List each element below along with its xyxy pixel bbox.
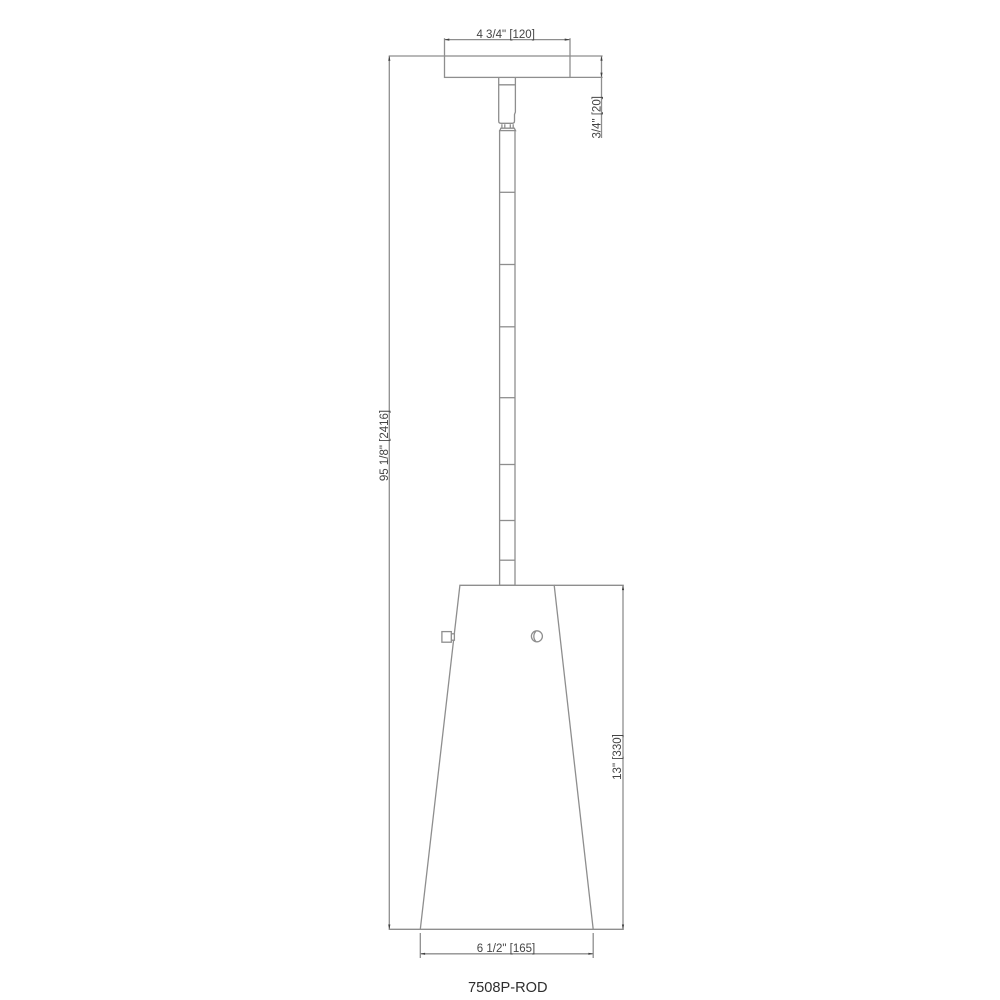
svg-text:95 1/8" [2416]: 95 1/8" [2416]: [379, 410, 391, 481]
svg-text:3/4" [20]: 3/4" [20]: [592, 96, 604, 138]
svg-text:6 1/2" [165]: 6 1/2" [165]: [477, 943, 535, 955]
svg-text:13" [330]: 13" [330]: [612, 734, 624, 780]
svg-text:4 3/4" [120]: 4 3/4" [120]: [476, 29, 534, 41]
svg-text:7508P-ROD: 7508P-ROD: [468, 980, 548, 996]
